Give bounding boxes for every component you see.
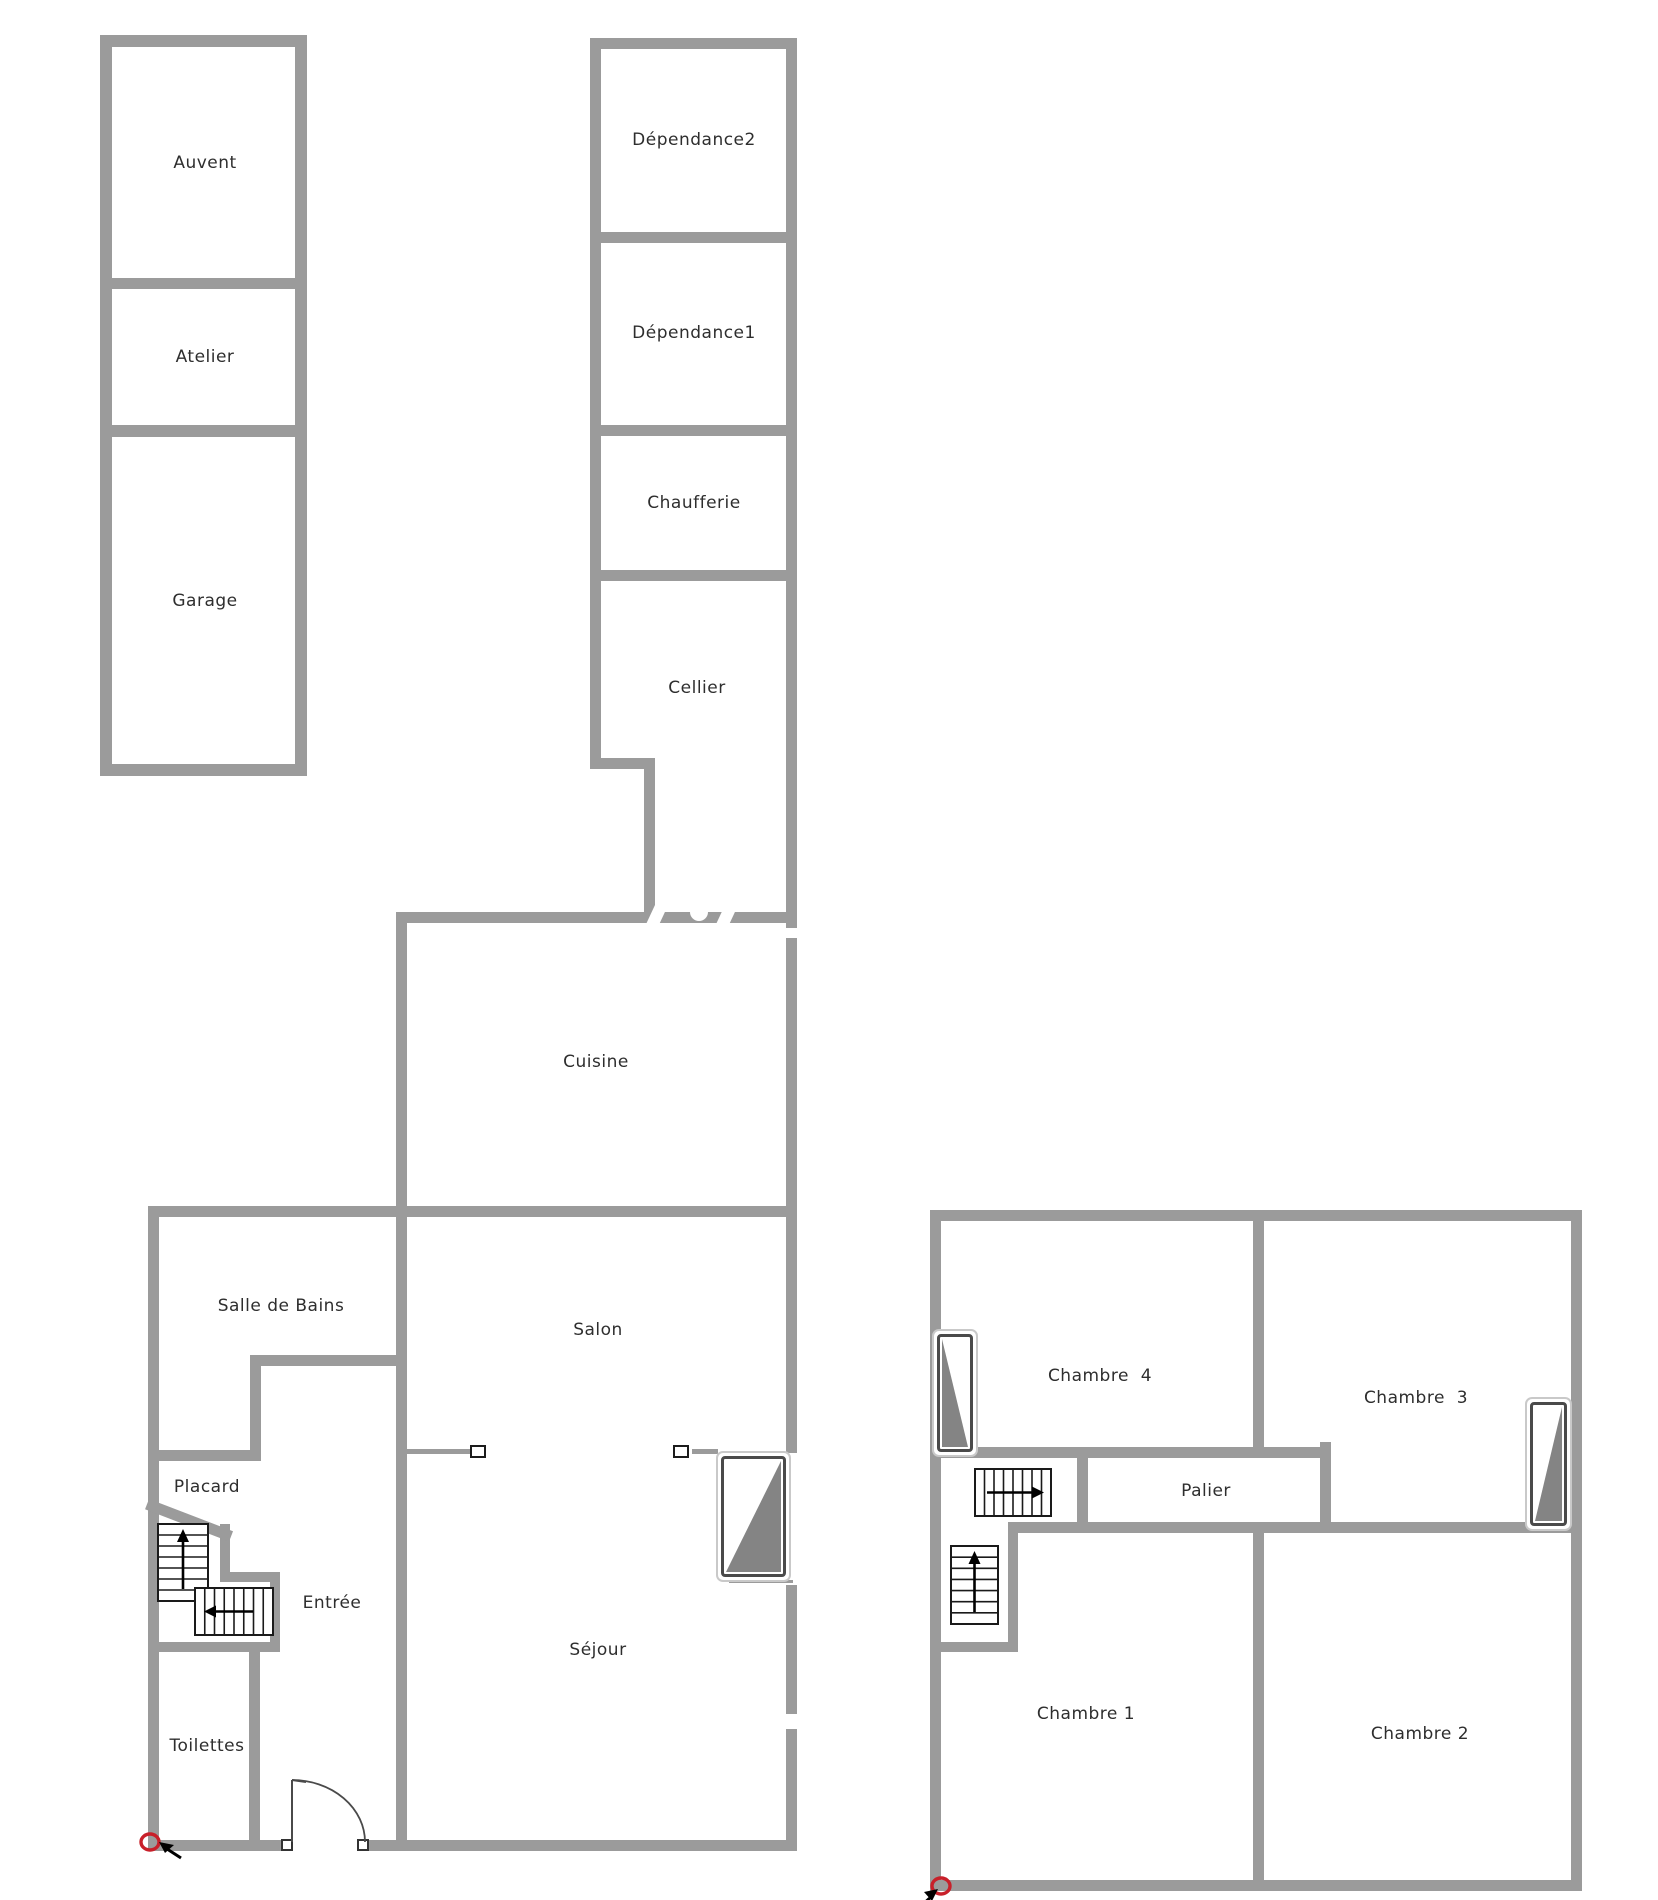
wall — [100, 35, 112, 776]
wall — [396, 912, 407, 1851]
window-icon — [716, 1451, 791, 1582]
room-label-chaufferie: Chaufferie — [647, 493, 740, 513]
stair-arrowhead — [1032, 1487, 1044, 1499]
stair-arrowhead — [969, 1551, 981, 1564]
stairs-icon — [158, 1524, 208, 1601]
cursor-icon — [921, 1896, 932, 1900]
wall — [270, 1572, 280, 1652]
wall — [786, 938, 797, 1453]
door-notch — [690, 903, 708, 921]
window-glass — [942, 1339, 968, 1447]
room-label-chambre-1: Chambre 1 — [1037, 1704, 1135, 1724]
door-leaf — [292, 1780, 306, 1782]
wall — [590, 425, 797, 436]
wall — [249, 1650, 260, 1841]
wall — [786, 1585, 797, 1714]
room-label-auvent: Auvent — [173, 153, 236, 173]
window-frame — [937, 1334, 973, 1452]
window-icon — [932, 1329, 978, 1457]
wall — [1571, 1210, 1582, 1891]
window-icon — [1525, 1397, 1572, 1531]
room-label-chambre-4: Chambre 4 — [1048, 1366, 1152, 1386]
wall — [100, 278, 307, 289]
stair-arrowhead — [177, 1529, 189, 1542]
wall — [590, 38, 797, 49]
divider-handle — [470, 1445, 486, 1458]
window-frame — [721, 1456, 786, 1577]
wall — [590, 232, 797, 243]
stairs-icon — [975, 1469, 1051, 1516]
window-frame — [1530, 1402, 1567, 1526]
wall — [930, 1447, 1331, 1458]
wall — [148, 1450, 258, 1461]
stairs-icon — [951, 1546, 998, 1624]
room-label-cuisine: Cuisine — [563, 1052, 629, 1072]
wall — [100, 35, 307, 47]
room-label-salle-de-bains: Salle de Bains — [218, 1296, 345, 1316]
wall — [148, 1642, 280, 1652]
wall — [1008, 1522, 1018, 1652]
room-label-dependance1: Dépendance1 — [632, 323, 756, 343]
door-post — [281, 1839, 293, 1851]
wall — [590, 570, 797, 581]
wall — [930, 1642, 1018, 1652]
wall — [644, 758, 655, 923]
room-label-sejour: Séjour — [569, 1640, 626, 1660]
door-post — [357, 1839, 369, 1851]
wall — [148, 1206, 797, 1217]
wall — [1008, 1522, 1571, 1533]
wall — [930, 1210, 941, 1891]
room-label-garage: Garage — [172, 591, 237, 611]
wall — [1320, 1442, 1331, 1533]
divider-handle — [673, 1445, 689, 1458]
wall — [148, 1840, 286, 1851]
room-label-dependance2: Dépendance2 — [632, 130, 756, 150]
wall — [1253, 1522, 1264, 1891]
room-label-placard: Placard — [174, 1477, 240, 1497]
room-label-chambre-3: Chambre 3 — [1364, 1388, 1468, 1408]
wall — [100, 425, 307, 437]
wall — [590, 38, 601, 769]
wall — [250, 1355, 407, 1366]
room-label-cellier: Cellier — [668, 678, 725, 698]
wall — [250, 1355, 261, 1461]
wall — [295, 35, 307, 776]
wall — [1077, 1447, 1088, 1533]
floorplan-canvas: AuventAtelierGarageDépendance2Dépendance… — [0, 0, 1658, 1900]
wall — [100, 764, 307, 776]
room-label-toilettes: Toilettes — [170, 1736, 245, 1756]
divider-line — [407, 1449, 472, 1454]
stairs-icon — [195, 1588, 273, 1635]
room-label-salon: Salon — [573, 1320, 623, 1340]
window-glass — [726, 1461, 781, 1572]
room-label-palier: Palier — [1181, 1481, 1231, 1501]
stair-arrowhead — [204, 1606, 216, 1618]
door-arc — [292, 1780, 365, 1842]
wall — [1253, 1210, 1264, 1458]
wall — [786, 38, 797, 928]
room-label-entree: Entrée — [303, 1593, 362, 1613]
wall — [148, 1206, 159, 1851]
room-label-chambre-2: Chambre 2 — [1371, 1724, 1469, 1744]
wall — [786, 1729, 797, 1851]
divider-line — [692, 1449, 718, 1454]
room-label-atelier: Atelier — [176, 347, 235, 367]
wall — [368, 1840, 797, 1851]
window-glass — [1535, 1407, 1562, 1521]
